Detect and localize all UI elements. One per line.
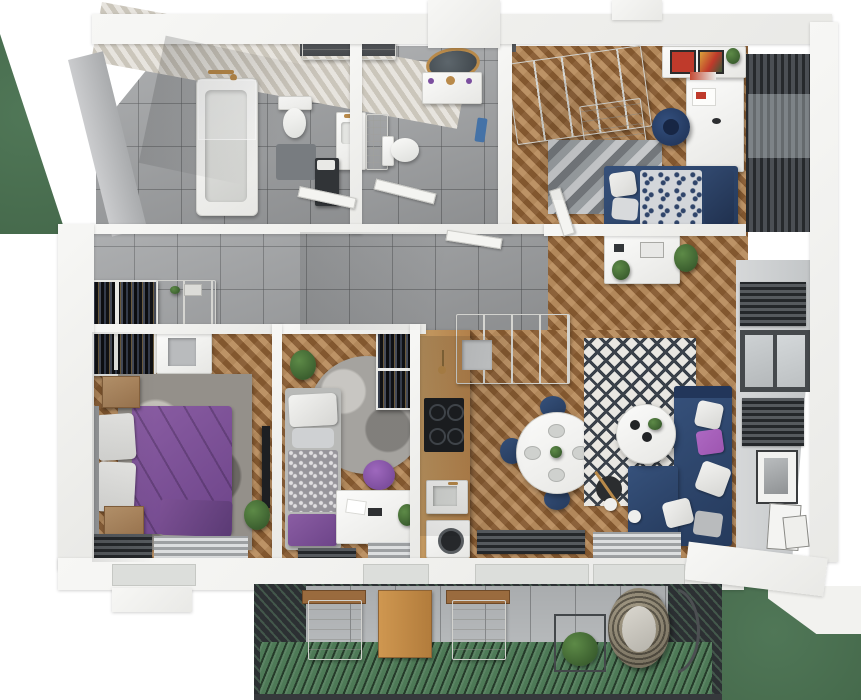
wardrobe-lower-divider bbox=[114, 334, 118, 370]
kitchen-faucet bbox=[448, 482, 458, 485]
cooktop-burner-4 bbox=[447, 428, 464, 445]
vanity-faucet bbox=[446, 76, 455, 85]
sofa-pillow-white-top bbox=[694, 400, 725, 431]
office-bed-pillow-grey bbox=[611, 197, 639, 221]
shelf-art-second bbox=[698, 50, 724, 74]
kids-desk-keyboard bbox=[368, 508, 382, 516]
wardrobe-upper-divider bbox=[115, 282, 119, 326]
floor-lamp-globe-2 bbox=[628, 510, 641, 523]
toilet-bowl bbox=[283, 108, 306, 138]
master-pillow-top bbox=[95, 413, 136, 462]
kids-patterned-blanket bbox=[288, 450, 338, 512]
office-chair-cushion bbox=[663, 119, 679, 135]
master-plant bbox=[244, 500, 270, 530]
sideboard-deco bbox=[614, 244, 624, 252]
laundry-basket bbox=[317, 160, 335, 170]
coffee-table-plant bbox=[648, 418, 662, 430]
master-bed-throw bbox=[159, 499, 232, 537]
shelf-art-red bbox=[670, 50, 696, 74]
office-bed-bolster bbox=[704, 170, 734, 224]
office-bed-pillow-white bbox=[608, 170, 637, 197]
floor-lamp-globe-1 bbox=[604, 498, 617, 511]
desk-paper-red-mark bbox=[696, 92, 706, 99]
grass-left-patch bbox=[0, 34, 66, 234]
wall-bathrooms-south bbox=[92, 224, 560, 234]
shelf-red-deco bbox=[690, 72, 716, 80]
coffee-cup-2 bbox=[642, 432, 652, 442]
east-window-pane-right bbox=[777, 335, 805, 387]
kids-pillow-white bbox=[288, 393, 338, 427]
dining-centerpiece bbox=[550, 446, 562, 458]
bath-mat bbox=[276, 144, 316, 180]
washing-machine-door bbox=[438, 528, 464, 554]
wall-wc-office-divider bbox=[498, 42, 512, 234]
lounger-1 bbox=[308, 600, 362, 660]
purple-pouf bbox=[363, 460, 395, 490]
sofa-armrest bbox=[674, 386, 732, 398]
living-radiator-light bbox=[593, 532, 681, 558]
kids-desk-paper bbox=[345, 499, 367, 516]
kitchen-sink-basin bbox=[433, 486, 457, 506]
window-reveal-tab-left bbox=[112, 588, 192, 612]
place-setting-west bbox=[524, 446, 541, 460]
nightstand-top bbox=[102, 376, 140, 408]
kids-purple-throw bbox=[288, 514, 337, 546]
living-radiator-south bbox=[477, 530, 585, 554]
south-window-kitchen bbox=[475, 564, 589, 586]
wall-west-exterior bbox=[58, 224, 94, 570]
kids-pillow-grey bbox=[292, 428, 334, 448]
balcony-plant bbox=[562, 632, 598, 666]
cooktop-burner-1 bbox=[429, 404, 446, 421]
cooktop-burner-2 bbox=[447, 404, 464, 421]
cabinet-plant-deco bbox=[170, 286, 180, 294]
south-window-kids bbox=[363, 564, 429, 586]
east-radiator-lower bbox=[742, 398, 804, 446]
vanity-deco-left bbox=[428, 78, 434, 84]
wall-master-east bbox=[272, 324, 282, 564]
cooktop-burner-3 bbox=[429, 428, 446, 445]
wall-north-stub-a bbox=[428, 0, 500, 48]
kitchen-cabinet-inset bbox=[462, 340, 492, 370]
sideboard-laptop bbox=[640, 242, 664, 258]
wc-toilet-bowl bbox=[391, 138, 419, 162]
wall-north-stub-b bbox=[612, 0, 662, 20]
apartment-floor-plan-render bbox=[0, 0, 861, 700]
shelf-plant bbox=[726, 48, 740, 64]
vanity-deco-right bbox=[466, 78, 472, 84]
place-setting-south bbox=[548, 468, 565, 482]
cabinet-lower-inset bbox=[168, 338, 196, 366]
cabinet-deco-box bbox=[184, 284, 202, 296]
framed-picture-tiny bbox=[782, 515, 809, 549]
shower-glass-screen bbox=[198, 80, 256, 140]
place-setting-north bbox=[548, 424, 565, 438]
office-bed-patterned-duvet bbox=[640, 170, 702, 226]
balcony-rim bbox=[254, 694, 722, 700]
framed-picture-image bbox=[764, 458, 788, 494]
pendant-lamp bbox=[438, 366, 446, 374]
egg-chair-cushion bbox=[622, 606, 656, 652]
wall-kids-north bbox=[280, 324, 426, 334]
east-radiator-upper bbox=[740, 282, 806, 326]
balcony-wood-table bbox=[378, 590, 432, 658]
sofa-pillow-purple bbox=[695, 428, 724, 455]
desk-mouse bbox=[712, 118, 721, 124]
wall-tv bbox=[262, 426, 270, 508]
wall-kids-east bbox=[410, 324, 420, 564]
sideboard-plant-left bbox=[612, 260, 630, 280]
wall-east-exterior bbox=[810, 22, 838, 562]
lounger-2 bbox=[452, 600, 506, 660]
office-window-glow bbox=[748, 94, 810, 158]
kids-plant bbox=[290, 350, 316, 380]
south-balcony-door bbox=[593, 564, 685, 586]
sideboard-plant-right bbox=[674, 244, 698, 272]
coffee-cup-1 bbox=[630, 420, 640, 430]
sofa-pillow-grey bbox=[692, 510, 723, 538]
master-radiator bbox=[88, 534, 152, 558]
wall-master-north bbox=[92, 324, 284, 334]
south-window-master bbox=[112, 564, 196, 586]
shower-fixture bbox=[208, 70, 234, 74]
east-window-pane-left bbox=[745, 335, 773, 387]
